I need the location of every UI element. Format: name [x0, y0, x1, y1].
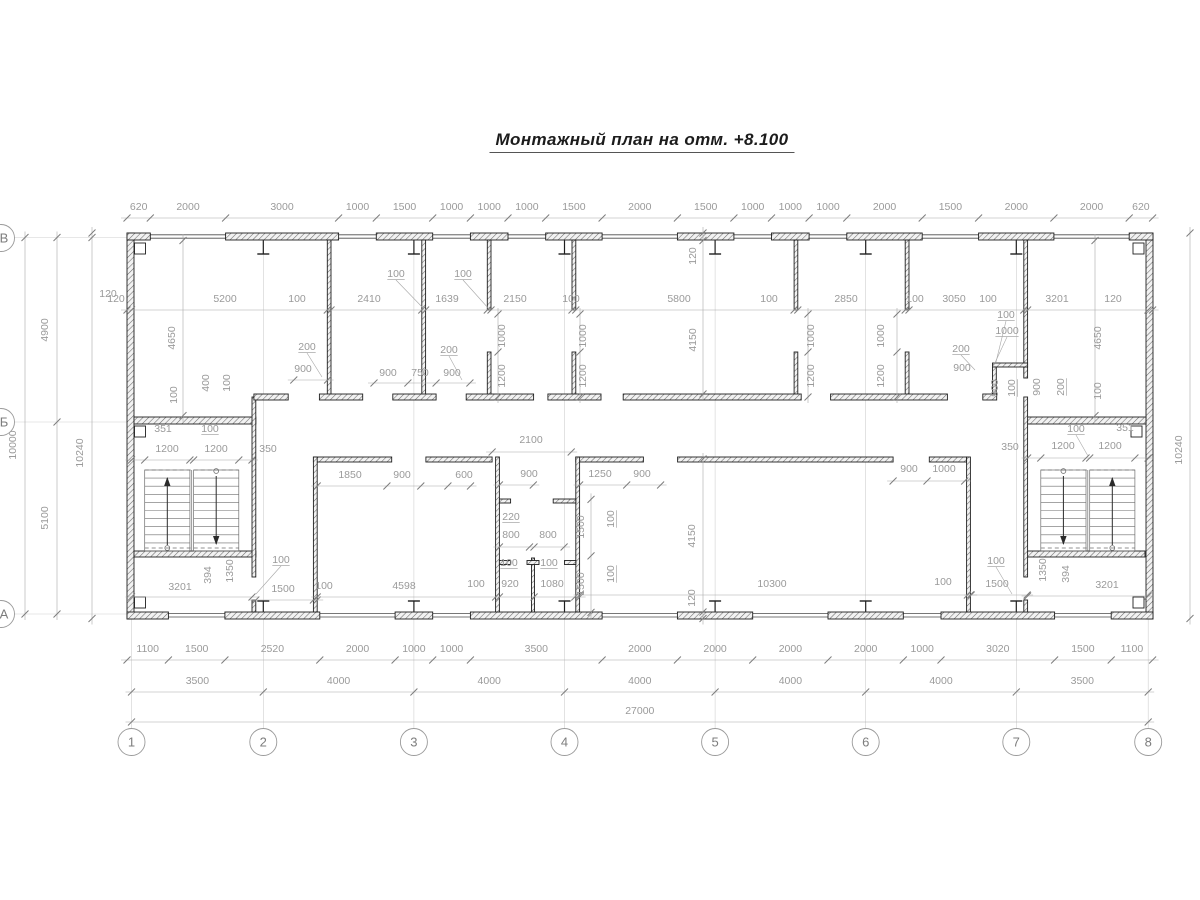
dim-label: 394: [202, 566, 214, 584]
dim-label: 900: [633, 468, 651, 480]
dim-label-group: 1500: [575, 572, 587, 596]
dim-label: 100: [500, 557, 518, 569]
label-leader-line: [993, 337, 1007, 367]
wall: [677, 612, 752, 619]
dim-label-group: 1500: [575, 515, 587, 539]
axis-number: 7: [1013, 735, 1020, 750]
dim-label-group: 100: [500, 557, 518, 569]
wall: [327, 240, 331, 397]
wall: [623, 394, 801, 400]
stair-start-marker: [1061, 469, 1066, 474]
dim-label-group: 100: [1006, 379, 1018, 397]
dim-label-group: 200: [440, 344, 458, 356]
dim-label: 100: [987, 555, 1005, 567]
dim-label-group: 100: [315, 580, 333, 592]
wall: [127, 233, 150, 240]
corner-detail: [135, 243, 146, 254]
dim-label: 1500: [939, 201, 963, 213]
dim-label: 4000: [779, 675, 803, 687]
dim-label: 4150: [687, 328, 699, 352]
dim-label: 2000: [854, 643, 878, 655]
dim-label: 100: [605, 510, 617, 528]
dim-label-group: 100: [467, 578, 485, 590]
dim-label-group: 1080: [540, 578, 564, 590]
wall: [794, 352, 798, 397]
wall: [532, 558, 535, 612]
wall: [313, 457, 391, 462]
dim-label: 5200: [213, 293, 237, 305]
dim-label: 100: [605, 565, 617, 583]
dim-label-group: 100: [272, 554, 290, 566]
label-leader-line: [463, 280, 489, 309]
dim-label-group: 220: [502, 511, 520, 523]
dim-label: 1200: [875, 364, 887, 388]
corner-detail: [1133, 243, 1144, 254]
dim-label: 1500: [985, 578, 1009, 590]
dim-label-group: 100: [201, 423, 219, 435]
dim-label: 4598: [392, 580, 416, 592]
dim-label: 1000: [515, 201, 539, 213]
dim-label: 900: [520, 468, 538, 480]
dim-label: 4650: [166, 326, 178, 350]
dim-label-group: 10300: [757, 578, 786, 590]
dim-label-group: 100: [1067, 423, 1085, 435]
dim-label: 600: [455, 469, 473, 481]
dim-label-group: 394: [202, 566, 214, 584]
dim-label: 2000: [873, 201, 897, 213]
dim-label: 1200: [805, 364, 817, 388]
dim-label: 100: [221, 374, 233, 392]
dim-label-group: 1850: [338, 469, 362, 481]
dim-label-group: 4650: [1092, 326, 1104, 350]
dim-label: 900: [379, 367, 397, 379]
dim-label: 400: [200, 374, 212, 392]
dim-label-group: 1200: [204, 443, 228, 455]
dim-label: 351: [1116, 422, 1134, 434]
wall: [576, 457, 644, 462]
wall: [941, 612, 1055, 619]
wall: [993, 363, 1028, 367]
axis-letter: В: [0, 231, 8, 246]
wall: [470, 233, 508, 240]
dim-label-group: 920: [501, 578, 519, 590]
dim-label: 1000: [440, 643, 464, 655]
dim-label-group: 1000: [875, 324, 887, 348]
dim-label: 920: [501, 578, 519, 590]
dim-label: 220: [502, 511, 520, 523]
dim-label: 200: [440, 344, 458, 356]
dim-label: 750: [411, 367, 429, 379]
dim-label: 900: [900, 463, 918, 475]
dim-label: 120: [687, 247, 699, 265]
axis-number: 4: [561, 735, 568, 750]
wall: [1024, 397, 1028, 577]
wall: [548, 394, 601, 400]
dim-label: 1000: [995, 325, 1019, 337]
dim-label: 3201: [168, 581, 192, 593]
dim-label-group: 4150: [686, 524, 698, 548]
wall: [967, 457, 971, 612]
dim-label: 1500: [575, 572, 587, 596]
dim-label-group: 1350: [224, 559, 236, 583]
dim-label-group: 4900: [39, 318, 51, 342]
dim-label: 620: [1132, 201, 1150, 213]
dim-label: 1000: [741, 201, 765, 213]
dim-label: 100: [934, 576, 952, 588]
dim-label: 4000: [628, 675, 652, 687]
drawing-sheet: Монтажный план на отм. +8.100 6202000300…: [0, 0, 1200, 900]
dim-label-group: 100: [605, 565, 617, 583]
dim-label-group: 10240: [74, 438, 86, 467]
corner-detail: [1133, 597, 1144, 608]
dim-label: 200: [298, 341, 316, 353]
dim-label: 100: [562, 293, 580, 305]
dim-label: 100: [997, 309, 1015, 321]
dim-label: 100: [272, 554, 290, 566]
dim-label: 1100: [136, 643, 159, 655]
dim-label: 2000: [779, 643, 803, 655]
dim-label-group: 1200: [577, 364, 589, 388]
dim-label-group: 1000: [805, 324, 817, 348]
wall: [979, 233, 1054, 240]
dim-label-group: 900: [393, 469, 411, 481]
corner-detail: [135, 426, 146, 437]
wall: [1024, 600, 1028, 612]
dim-label: 1500: [185, 643, 209, 655]
dim-label: 800: [539, 529, 557, 541]
axis-letter: А: [0, 607, 9, 622]
dim-label: 1350: [224, 559, 236, 583]
wall: [772, 233, 810, 240]
axis-number: 1: [128, 735, 135, 750]
dim-label: 394: [1060, 565, 1072, 583]
dim-label-group: 1250: [588, 468, 612, 480]
wall: [487, 240, 491, 310]
dim-label-group: 600: [455, 469, 473, 481]
dim-label-group: 394: [1060, 565, 1072, 583]
dim-label-group: 200: [1055, 378, 1067, 396]
dim-label: 3201: [1045, 293, 1069, 305]
dim-label-group: 100: [387, 268, 405, 280]
dim-label-group: 1500: [985, 578, 1009, 590]
dim-label: 2410: [357, 293, 381, 305]
dim-label: 350: [259, 443, 277, 455]
dim-label: 1000: [346, 201, 370, 213]
wall: [929, 457, 966, 462]
dim-label: 2520: [261, 643, 285, 655]
dim-label: 2000: [628, 201, 652, 213]
dim-label-group: 120: [99, 288, 117, 300]
dim-label-group: 1000: [496, 324, 508, 348]
dim-label: 100: [467, 578, 485, 590]
dim-label-group: 900: [379, 367, 397, 379]
axis-number: 3: [410, 735, 417, 750]
dim-label: 900: [1031, 378, 1043, 396]
dim-label: 1000: [816, 201, 840, 213]
dim-label: 100: [387, 268, 405, 280]
wall: [677, 233, 734, 240]
wall: [426, 457, 492, 462]
dim-label: 100: [168, 386, 180, 404]
dim-label: 2000: [628, 643, 652, 655]
dim-label-group: 100: [1092, 382, 1104, 400]
dim-label-group: 900: [520, 468, 538, 480]
dim-label: 120: [99, 288, 117, 300]
dim-label: 1100: [1121, 643, 1144, 655]
wall: [831, 394, 948, 400]
dim-label: 2000: [1080, 201, 1104, 213]
wall: [395, 612, 433, 619]
wall: [499, 499, 510, 503]
wall: [252, 397, 256, 577]
dim-label-group: 1200: [805, 364, 817, 388]
dim-label: 200: [1055, 378, 1067, 396]
stair-arrow-icon: [213, 536, 219, 545]
dim-label-group: 100: [168, 386, 180, 404]
dim-label: 3201: [1095, 579, 1119, 591]
dim-label-group: 100: [934, 576, 952, 588]
wall: [254, 394, 288, 400]
wall: [572, 352, 576, 397]
corner-detail: [135, 597, 146, 608]
wall: [127, 612, 168, 619]
axis-number: 8: [1145, 735, 1152, 750]
dim-label: 351: [154, 423, 172, 435]
dim-label-group: 100: [997, 309, 1015, 321]
dim-label: 120: [1104, 293, 1122, 305]
dim-label: 2000: [346, 643, 370, 655]
dim-label: 2000: [703, 643, 727, 655]
floor-plan: 6202000300010001500100010001000150020001…: [0, 0, 1200, 900]
dim-label: 1500: [1071, 643, 1095, 655]
dim-label: 1500: [575, 515, 587, 539]
dim-label: 2850: [834, 293, 858, 305]
wall: [319, 394, 362, 400]
wall: [226, 233, 339, 240]
dim-label: 1200: [155, 443, 179, 455]
wall: [1129, 233, 1153, 240]
dim-label: 800: [502, 529, 520, 541]
dim-label-group: 100: [540, 557, 558, 569]
axis-number: 2: [260, 735, 267, 750]
dim-label-group: 2100: [519, 434, 543, 446]
wall: [470, 612, 602, 619]
dim-label: 5100: [39, 506, 51, 530]
dim-label: 3020: [986, 643, 1010, 655]
dim-label-group: 800: [502, 529, 520, 541]
dim-label: 100: [760, 293, 778, 305]
wall: [225, 612, 320, 619]
dim-label: 900: [953, 362, 971, 374]
dim-label-group: 4150: [687, 328, 699, 352]
dim-label: 100: [1067, 423, 1085, 435]
dim-label: 100: [906, 293, 924, 305]
dim-label: 1000: [805, 324, 817, 348]
dim-label-group: 4598: [392, 580, 416, 592]
dim-label-group: 1000: [995, 325, 1019, 337]
dim-label-group: 1350: [1037, 558, 1049, 582]
dim-label: 1200: [1098, 440, 1122, 452]
dim-label-group: 1200: [1051, 440, 1075, 452]
wall: [127, 233, 134, 619]
dim-label: 1500: [271, 583, 295, 595]
dim-label: 1000: [911, 643, 935, 655]
dim-label-group: 1200: [155, 443, 179, 455]
dim-label: 10000: [7, 430, 19, 459]
dim-label-group: 900: [633, 468, 651, 480]
wall: [376, 233, 432, 240]
dim-label-group: 400: [200, 374, 212, 392]
axis-number: 6: [862, 735, 869, 750]
stair-arrow-icon: [1060, 536, 1066, 545]
dim-label-group: 350: [1001, 441, 1019, 453]
wall: [134, 551, 256, 557]
dim-label: 1080: [540, 578, 564, 590]
dim-label: 200: [952, 343, 970, 355]
dim-label: 1200: [1051, 440, 1075, 452]
dim-label: 1000: [496, 324, 508, 348]
dim-label-group: 1500: [271, 583, 295, 595]
dim-label: 5800: [667, 293, 691, 305]
dim-label-group: 1000: [932, 463, 956, 475]
dim-label: 1000: [440, 201, 464, 213]
dim-label: 100: [979, 293, 997, 305]
dim-label-group: 351: [154, 423, 172, 435]
dim-label: 100: [315, 580, 333, 592]
dim-label-group: 100: [987, 555, 1005, 567]
dim-label-group: 900: [989, 379, 1001, 397]
dim-label-group: 900: [294, 363, 312, 375]
dim-label: 900: [393, 469, 411, 481]
dim-label-group: 100: [605, 510, 617, 528]
dim-label: 100: [540, 557, 558, 569]
wall: [527, 561, 539, 565]
wall: [794, 240, 798, 310]
dim-label-group: 4650: [166, 326, 178, 350]
dim-label: 1000: [402, 643, 426, 655]
dim-label: 10300: [757, 578, 786, 590]
stair-start-marker: [214, 469, 219, 474]
dim-label-group: 750: [411, 367, 429, 379]
dim-label: 3500: [1071, 675, 1095, 687]
dim-label: 100: [288, 293, 306, 305]
dim-label: 620: [130, 201, 148, 213]
wall: [1111, 612, 1153, 619]
dim-label-group: 200: [298, 341, 316, 353]
dim-label: 3500: [186, 675, 210, 687]
wall: [546, 233, 602, 240]
dim-label: 4900: [39, 318, 51, 342]
dim-label: 1500: [393, 201, 417, 213]
dim-label-group: 100: [221, 374, 233, 392]
wall: [487, 352, 491, 397]
dim-label: 900: [294, 363, 312, 375]
dim-label-group: 900: [900, 463, 918, 475]
wall: [1146, 233, 1153, 619]
dim-label: 1200: [577, 364, 589, 388]
dim-label: 1000: [779, 201, 803, 213]
dim-label: 1350: [1037, 558, 1049, 582]
dim-label: 1000: [577, 324, 589, 348]
wall: [847, 233, 922, 240]
dim-label-group: 200: [952, 343, 970, 355]
dim-label-group: 1200: [1098, 440, 1122, 452]
dim-label: 1200: [204, 443, 228, 455]
wall: [1024, 551, 1145, 557]
dim-label-group: 3201: [1095, 579, 1119, 591]
dim-label: 3500: [525, 643, 549, 655]
dim-label: 27000: [625, 705, 654, 717]
dim-label: 2000: [1005, 201, 1029, 213]
wall: [565, 561, 576, 565]
dim-label: 2000: [176, 201, 200, 213]
dim-label-group: 120: [686, 589, 698, 607]
dim-label: 4150: [686, 524, 698, 548]
dim-label: 4000: [327, 675, 351, 687]
dim-label: 100: [201, 423, 219, 435]
dim-label: 100: [454, 268, 472, 280]
dim-label-group: 900: [953, 362, 971, 374]
dim-label-group: 900: [1031, 378, 1043, 396]
dim-label-group: 120: [687, 247, 699, 265]
wall: [905, 352, 909, 397]
dim-label: 4000: [929, 675, 953, 687]
dim-label: 4650: [1092, 326, 1104, 350]
wall: [678, 457, 894, 462]
dim-label: 1850: [338, 469, 362, 481]
dim-label: 1200: [496, 364, 508, 388]
dim-label: 350: [1001, 441, 1019, 453]
dim-label: 3050: [942, 293, 966, 305]
dim-label-group: 351: [1116, 422, 1134, 434]
dim-label: 2100: [519, 434, 543, 446]
wall: [393, 394, 436, 400]
dim-label-group: 1200: [875, 364, 887, 388]
dim-label-group: 10240: [1173, 435, 1185, 464]
dim-label: 100: [1006, 379, 1018, 397]
dim-label-group: 5100: [39, 506, 51, 530]
dim-label: 1500: [562, 201, 586, 213]
dim-label: 1250: [588, 468, 612, 480]
wall: [553, 499, 576, 503]
dim-label: 10240: [74, 438, 86, 467]
dim-label-group: 1000: [577, 324, 589, 348]
dim-label: 1000: [478, 201, 502, 213]
label-leader-line: [396, 280, 424, 309]
wall: [828, 612, 903, 619]
dim-label: 100: [1092, 382, 1104, 400]
dim-label: 10240: [1173, 435, 1185, 464]
wall: [496, 457, 500, 612]
dim-label: 1000: [875, 324, 887, 348]
dim-label: 1500: [694, 201, 718, 213]
axis-number: 5: [711, 735, 718, 750]
dim-label-group: 350: [259, 443, 277, 455]
dim-label: 900: [989, 379, 1001, 397]
dim-label: 2150: [503, 293, 527, 305]
axis-letter: Б: [0, 415, 8, 430]
dim-label-group: 10000: [7, 430, 19, 459]
dim-label: 4000: [478, 675, 502, 687]
dim-label-group: 800: [539, 529, 557, 541]
label-leader-line: [1076, 435, 1088, 456]
dim-label: 1000: [932, 463, 956, 475]
dim-label-group: 3201: [168, 581, 192, 593]
wall: [134, 417, 256, 424]
dim-label-group: 100: [454, 268, 472, 280]
dim-label: 1639: [435, 293, 459, 305]
dim-label-group: 1200: [496, 364, 508, 388]
